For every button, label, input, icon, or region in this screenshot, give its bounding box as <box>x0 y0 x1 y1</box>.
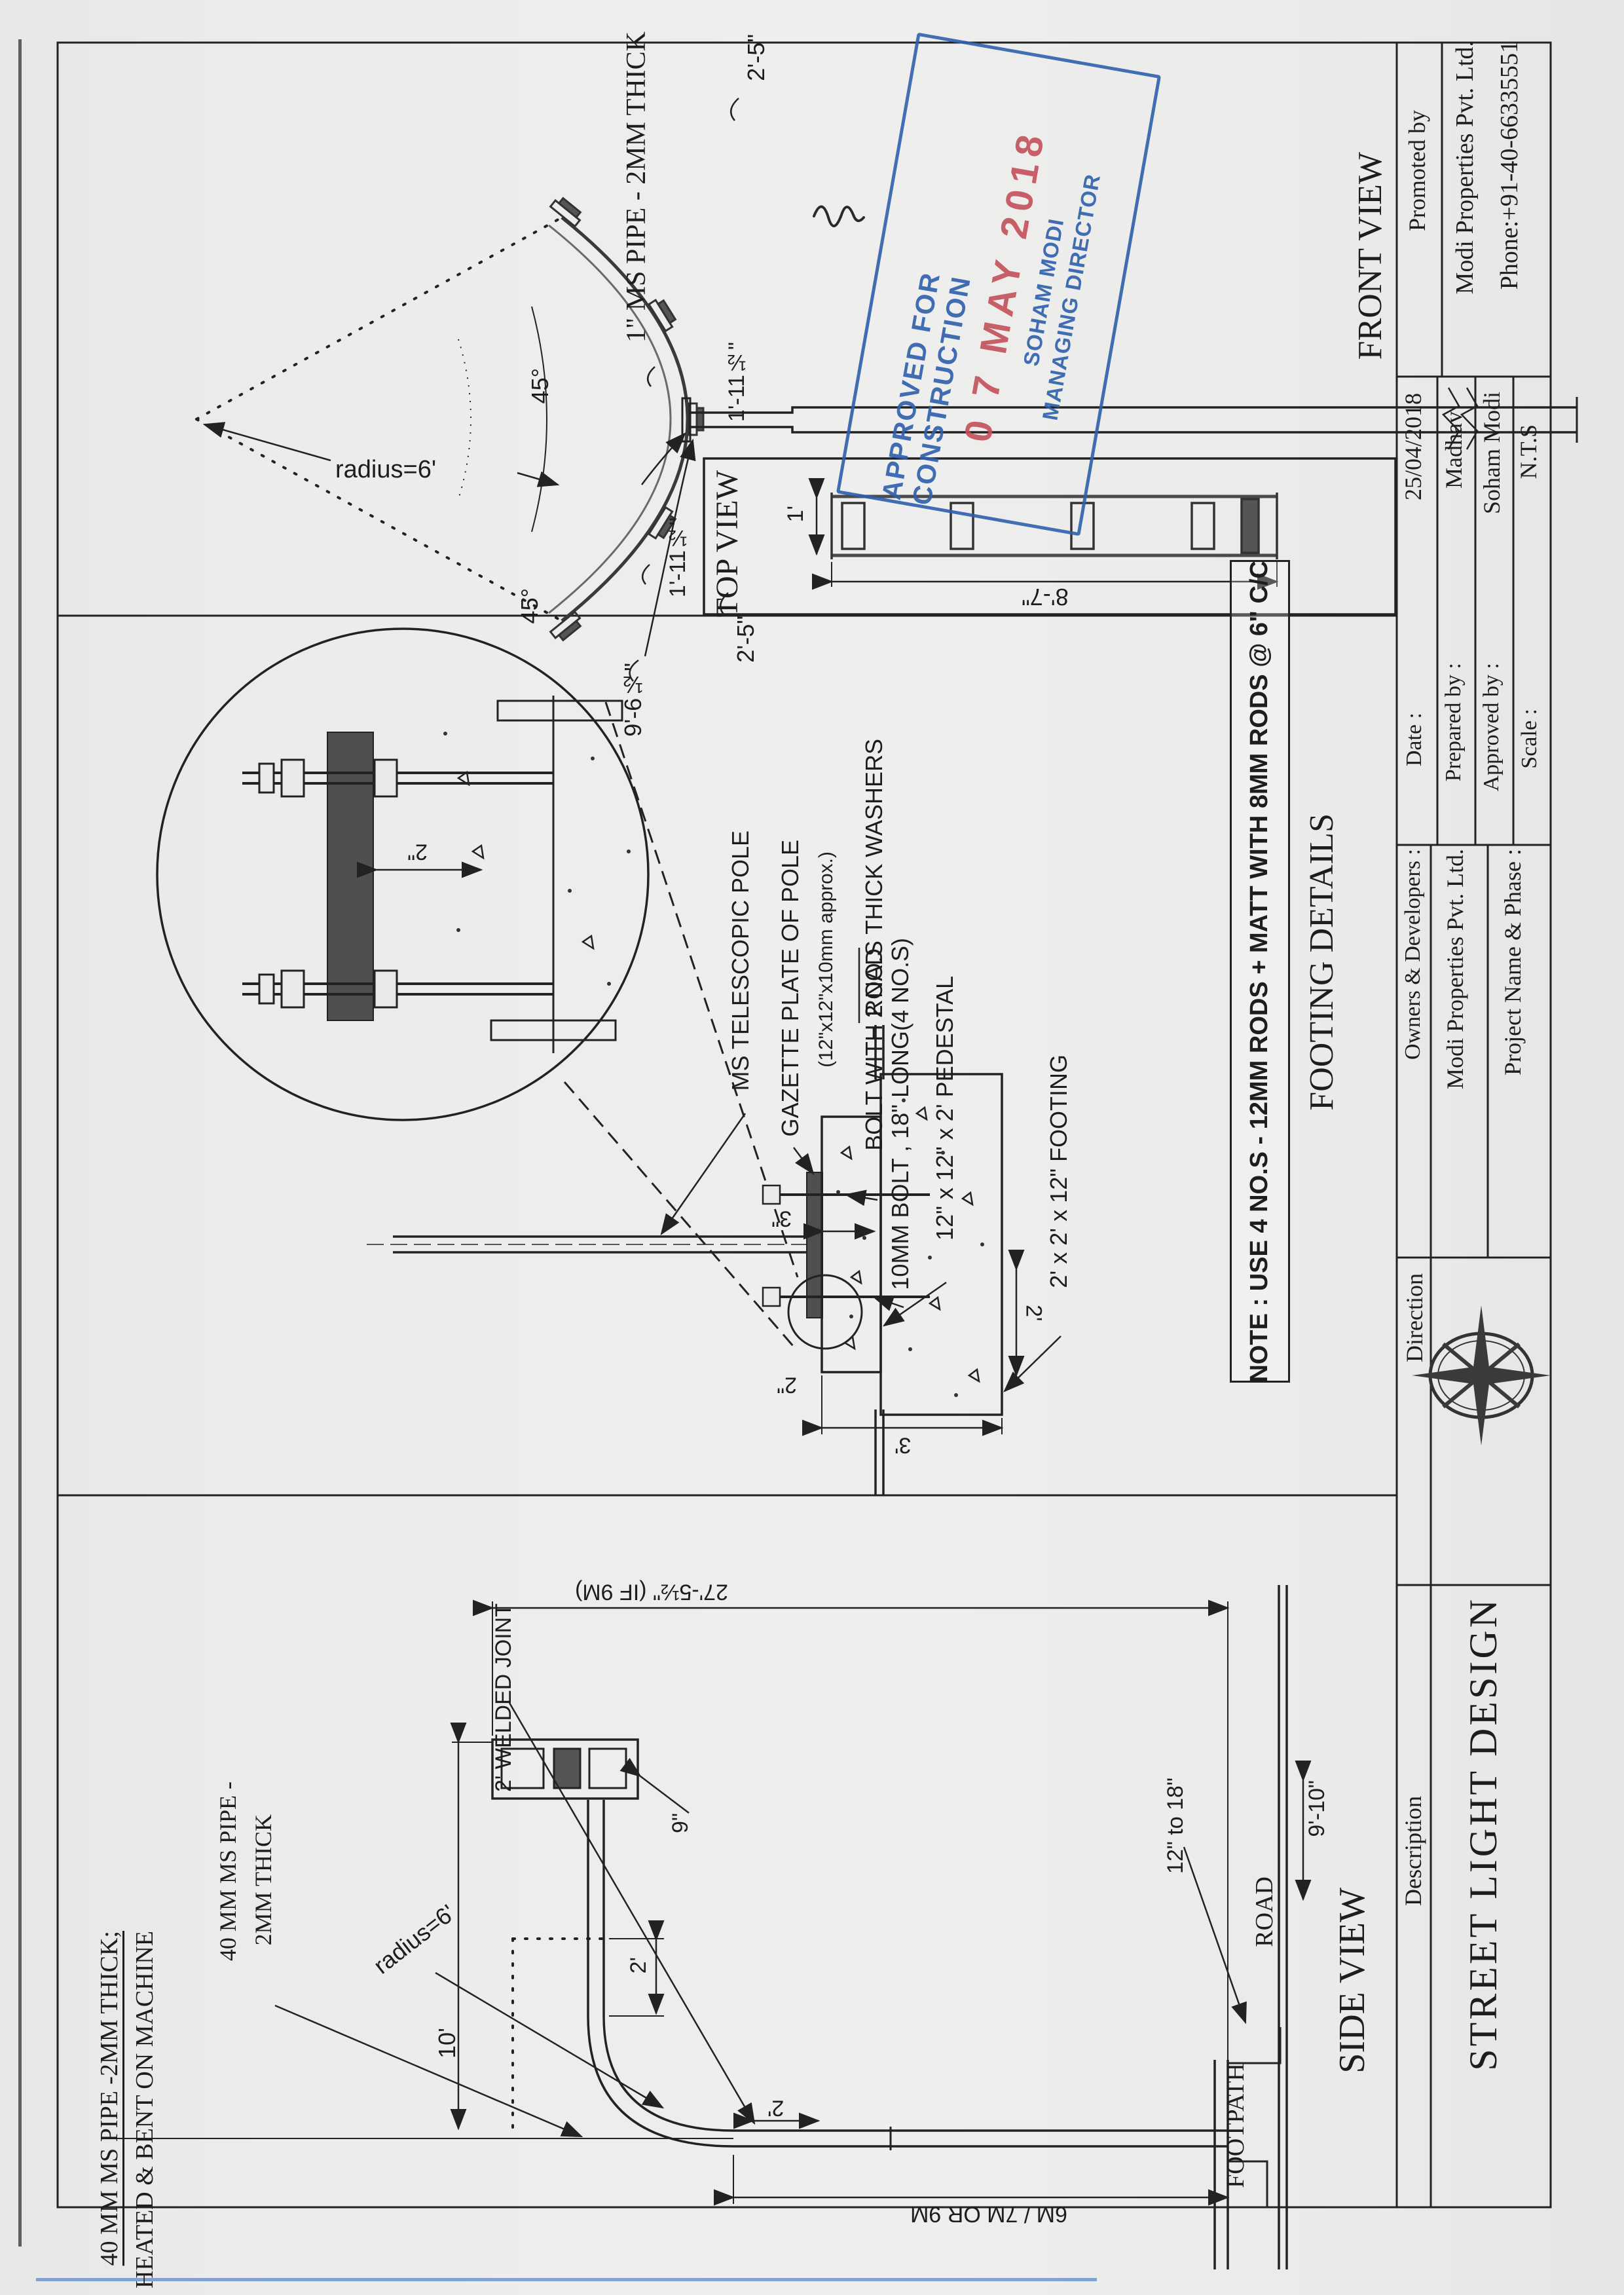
side-view-title: SIDE VIEW <box>1333 1888 1372 2074</box>
label-gazette-plate-size: (12"x12"x10mm approx.) <box>816 851 837 1068</box>
label-gazette-plate: GAZETTE PLATE OF POLE <box>778 840 803 1136</box>
prepared-value: Madhav <box>1442 411 1467 489</box>
scale-label: Scale : <box>1518 709 1541 769</box>
footing-details-title: FOOTING DETAILS <box>1304 813 1340 1111</box>
prepared-label: Prepared by : <box>1442 663 1466 781</box>
dim-clearance: 9'-10" <box>1306 1780 1329 1837</box>
label-bolt-washers: BOLT WITH 2 NO.S THICK WASHERS <box>862 739 887 1151</box>
owners-project: Project Name & Phase : <box>1501 849 1526 1075</box>
dim-side-gap: 2" <box>777 1373 797 1396</box>
top-view-dim-width: 1' <box>784 506 808 522</box>
date-label: Date : <box>1403 713 1426 766</box>
dim-end-upper: 2'-5" <box>744 34 769 81</box>
top-view-title: TOP VIEW <box>711 470 744 617</box>
welded-joint-label: 2' WELDED JOINT <box>492 1603 516 1792</box>
dim-footing-width: 3' <box>895 1433 911 1457</box>
direction-label: Direction <box>1403 1273 1428 1362</box>
dim-inner-lower: 1'-11½" <box>667 517 690 597</box>
date-value: 25/04/2018 <box>1401 393 1426 500</box>
dim-drop-2ft: 2' <box>627 1957 651 1973</box>
owners-label: Owners & Developers : <box>1401 849 1425 1060</box>
approved-value: Soham Modi <box>1480 392 1505 514</box>
dim-head-9in: 9" <box>669 1813 693 1833</box>
dim-inner-upper: 1'-11½" <box>726 342 749 422</box>
promoted-phone: Phone:+91-40-66335551 <box>1497 41 1523 289</box>
description-label: Description <box>1401 1796 1426 1906</box>
dim-arc-label: 9'-6½" <box>621 663 646 737</box>
dim-footing-depth: 2' <box>1022 1305 1045 1321</box>
pipe-label-front: 1" MS PIPE - 2MM THICK <box>622 31 651 343</box>
dim-total-length: 27'-5½" (IF 9M) <box>575 1580 728 1603</box>
side-pipe-label-1: 40 MM MS PIPE - <box>216 1782 241 1961</box>
owners-company: Modi Properties Pvt. Ltd. <box>1443 849 1468 1089</box>
label-footing: 2' x 2' x 12" FOOTING <box>1046 1054 1071 1288</box>
angle-upper: 45° <box>528 368 553 403</box>
footing-note: NOTE : USE 4 NO.S - 12MM RODS + MATT WIT… <box>1247 561 1273 1383</box>
description-value: STREET LIGHT DESIGN <box>1463 1597 1504 2071</box>
dim-arm-10ft: 10' <box>435 2028 460 2059</box>
side-pipe-note-1: 40 MM MS PIPE -2MM THICK; <box>97 1931 123 2266</box>
footpath-label: FOOTPATH <box>1223 2063 1249 2188</box>
dim-pole-length: 6M / 7M OR 9M <box>910 2202 1067 2226</box>
radius-label-front: radius=6' <box>335 457 436 483</box>
road-label-side: ROAD <box>1252 1876 1278 1947</box>
front-view-title: FRONT VIEW <box>1353 152 1389 360</box>
label-pedestal: 12" x 12" x 2' PEDESTAL <box>932 976 957 1241</box>
side-pipe-note-2: HEATED & BENT ON MACHINE <box>132 1931 158 2288</box>
drawing-sheet: 2'-5" 2'-5" 45° 45° radius=6' 1'-11½" 1'… <box>0 0 1624 2295</box>
angle-lower: 45° <box>517 588 542 624</box>
top-view-dim-length: 8'-7" <box>1022 584 1069 609</box>
label-road-footing: ROAD <box>862 948 887 1017</box>
note-box: NOTE : USE 4 NO.S - 12MM RODS + MATT WIT… <box>1230 560 1290 1383</box>
dim-top-offset: 3" <box>771 1206 792 1230</box>
promoted-company: Modi Properties Pvt. Ltd. <box>1452 41 1479 294</box>
dim-plate-gap: 2" <box>407 840 428 863</box>
pen-mark <box>809 180 887 239</box>
label-ms-telescopic-pole: MS TELESCOPIC POLE <box>728 830 753 1091</box>
side-pipe-label-2: 2MM THICK <box>251 1814 276 1945</box>
dim-kerb: 12" to 18" <box>1164 1778 1188 1874</box>
dim-weld-2ft: 2' <box>767 2096 784 2119</box>
dim-end-lower: 2'-5" <box>733 616 758 663</box>
promoted-by-label: Promoted by <box>1405 110 1430 231</box>
approved-label: Approved by : <box>1480 663 1504 791</box>
label-10mm-bolt: 10MM BOLT , 18" LONG(4 NO.S) <box>888 938 913 1290</box>
scale-value: N.T.S <box>1517 424 1541 479</box>
